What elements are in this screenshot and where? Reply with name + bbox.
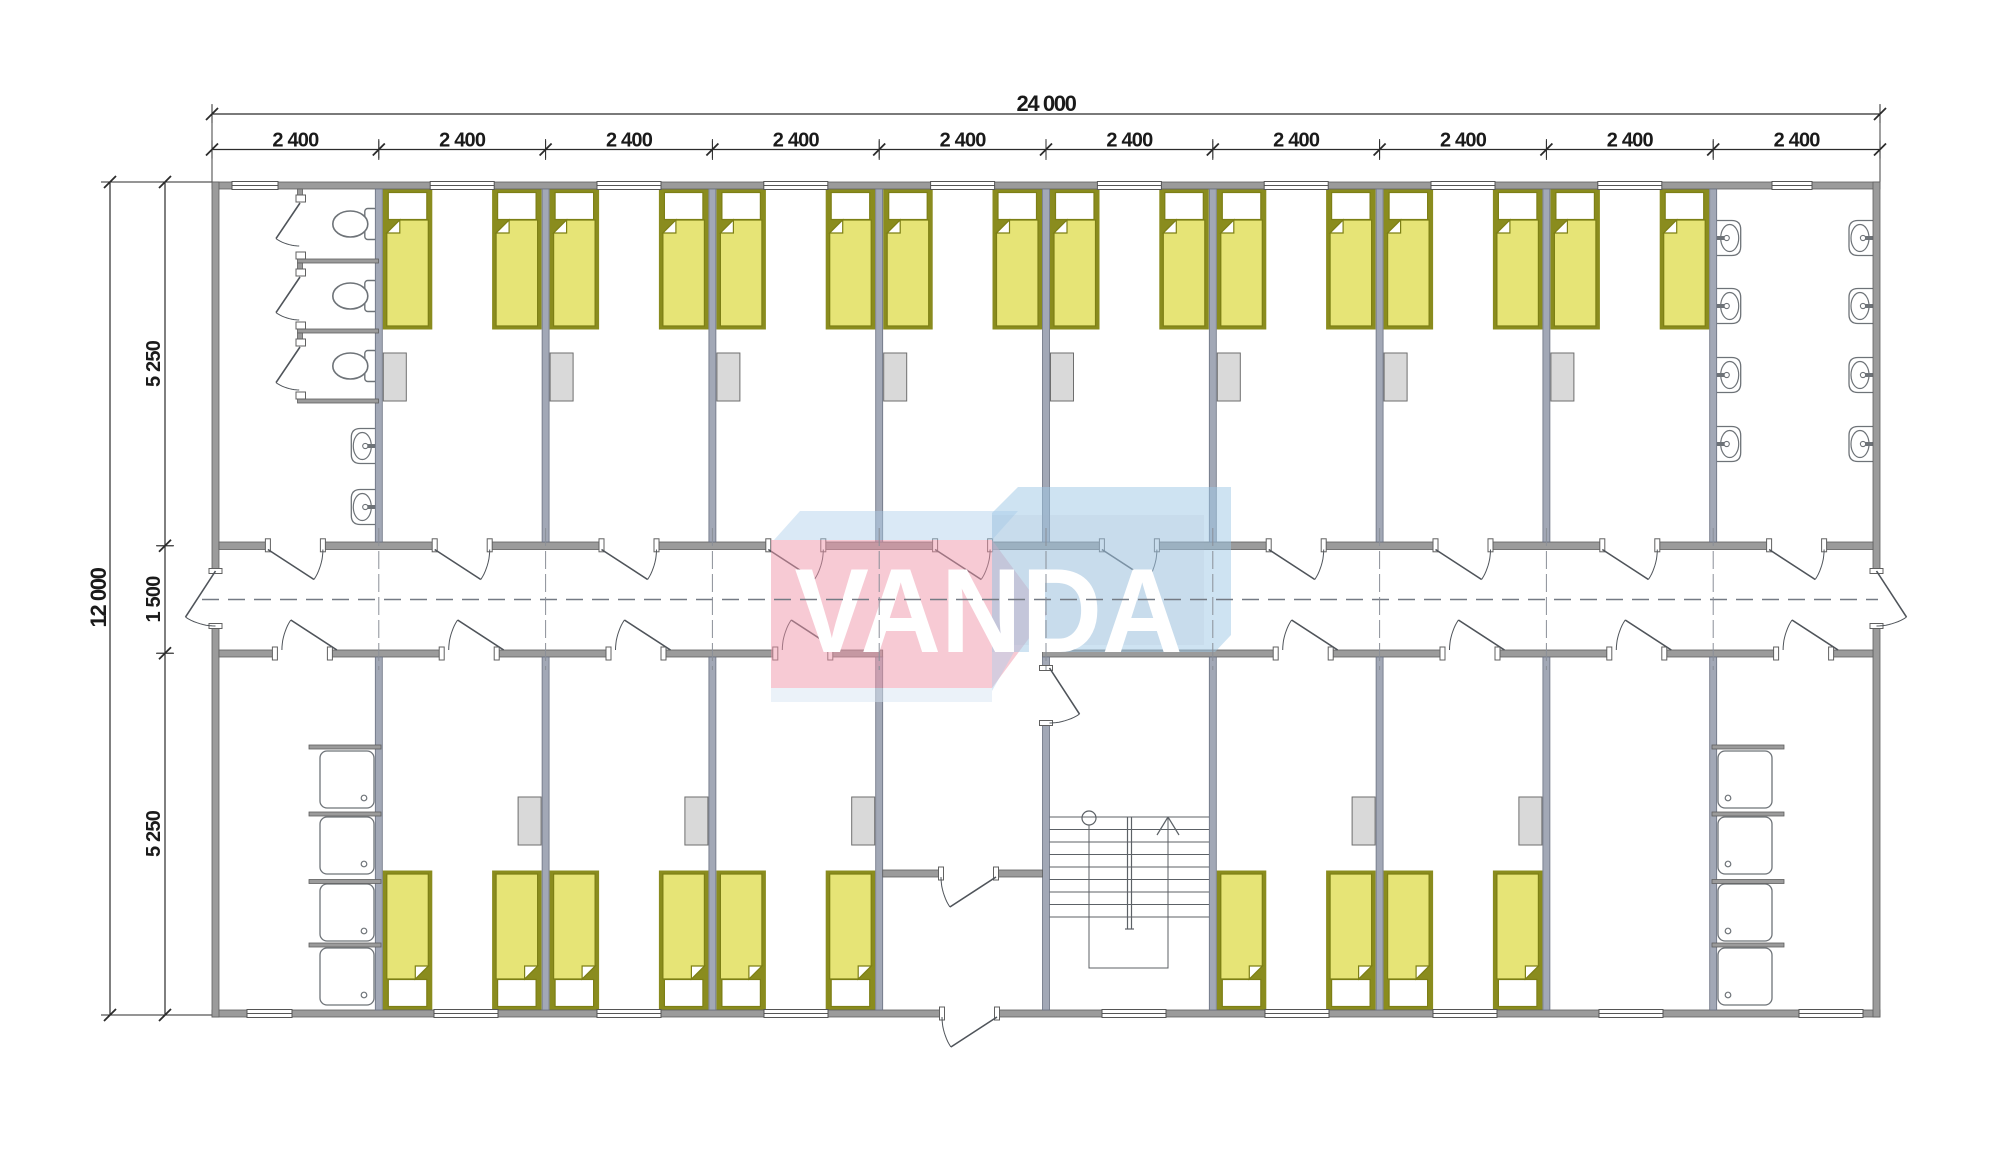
- svg-text:VANDA: VANDA: [795, 544, 1183, 678]
- svg-text:2 400: 2 400: [1440, 130, 1487, 152]
- svg-text:5 250: 5 250: [143, 810, 165, 857]
- svg-text:24 000: 24 000: [1017, 91, 1077, 116]
- svg-text:2 400: 2 400: [439, 130, 486, 152]
- svg-text:5 250: 5 250: [143, 340, 165, 387]
- svg-text:2 400: 2 400: [1106, 130, 1153, 152]
- svg-text:2 400: 2 400: [272, 130, 319, 152]
- svg-text:2 400: 2 400: [606, 130, 653, 152]
- svg-text:2 400: 2 400: [1774, 130, 1821, 152]
- svg-text:2 400: 2 400: [1607, 130, 1654, 152]
- svg-text:2 400: 2 400: [773, 130, 820, 152]
- svg-text:2 400: 2 400: [940, 130, 987, 152]
- svg-text:1 500: 1 500: [143, 576, 165, 623]
- svg-text:2 400: 2 400: [1273, 130, 1320, 152]
- svg-text:12 000: 12 000: [86, 567, 111, 627]
